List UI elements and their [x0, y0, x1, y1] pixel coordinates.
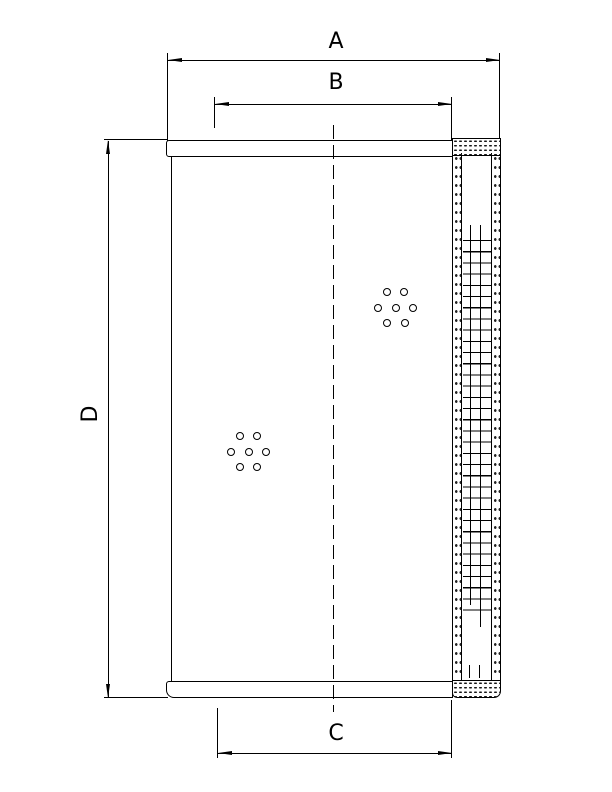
- pleat-end-stub-right: [479, 665, 480, 678]
- dimension-d-extension-top: [104, 139, 168, 140]
- dimension-a-label: A: [321, 31, 351, 53]
- dimension-b-extension-right: [451, 97, 452, 140]
- perforation-hole: [383, 288, 391, 296]
- pleat-hatch-vertical-left: [470, 225, 471, 605]
- section-top-cap: [453, 139, 500, 156]
- perforation-hole: [409, 304, 417, 312]
- dimension-b-arrow-left: [215, 102, 229, 106]
- mesh-wall-right-inner-line: [491, 153, 492, 680]
- filter-body: [171, 155, 455, 683]
- dimension-b-extension-left: [214, 97, 215, 128]
- pleat-hatch-rungs: [463, 240, 491, 620]
- dimension-a-arrow-left: [168, 58, 182, 62]
- section-bottom-cap: [453, 680, 500, 697]
- centerline: [333, 125, 334, 712]
- dimension-c-extension-right: [451, 700, 452, 758]
- dimension-b-line: [215, 104, 452, 105]
- dimension-a-arrow-right: [486, 58, 500, 62]
- dimension-a-extension-right: [499, 53, 500, 139]
- mesh-wall-right: [493, 154, 500, 678]
- pleat-hatch-vertical-right: [480, 225, 481, 627]
- dimension-c-extension-left: [217, 708, 218, 758]
- dimension-d-arrow-top: [106, 140, 110, 154]
- perforation-hole: [374, 304, 382, 312]
- drawing-sheet: A B C D: [0, 0, 612, 792]
- dimension-a-line: [168, 60, 500, 61]
- mesh-wall-left-inner-line: [461, 153, 462, 680]
- perforation-hole: [400, 288, 408, 296]
- dimension-d-extension-bottom: [104, 697, 168, 698]
- perforation-hole: [392, 304, 400, 312]
- perforation-hole: [401, 319, 409, 327]
- dimension-a-extension-left: [167, 53, 168, 141]
- perforation-hole: [236, 432, 244, 440]
- perforation-hole: [262, 448, 270, 456]
- perforation-hole: [245, 448, 253, 456]
- top-end-cap: [166, 140, 453, 157]
- pleat-end-stub-left: [469, 665, 470, 678]
- dimension-b-arrow-right: [438, 102, 452, 106]
- dimension-c-line: [218, 753, 452, 754]
- mesh-wall-left: [454, 154, 461, 678]
- dimension-c-arrow-left: [218, 751, 232, 755]
- dimension-c-arrow-right: [438, 751, 452, 755]
- dimension-c-label: C: [321, 723, 351, 745]
- perforation-hole: [383, 319, 391, 327]
- perforation-hole: [236, 463, 244, 471]
- perforation-hole: [253, 463, 261, 471]
- dimension-d-label: D: [80, 399, 102, 429]
- perforation-hole: [227, 448, 235, 456]
- bottom-end-cap: [166, 681, 453, 698]
- dimension-b-label: B: [321, 72, 351, 94]
- dimension-d-line: [108, 141, 109, 698]
- dimension-d-arrow-bottom: [106, 684, 110, 698]
- perforation-hole: [253, 432, 261, 440]
